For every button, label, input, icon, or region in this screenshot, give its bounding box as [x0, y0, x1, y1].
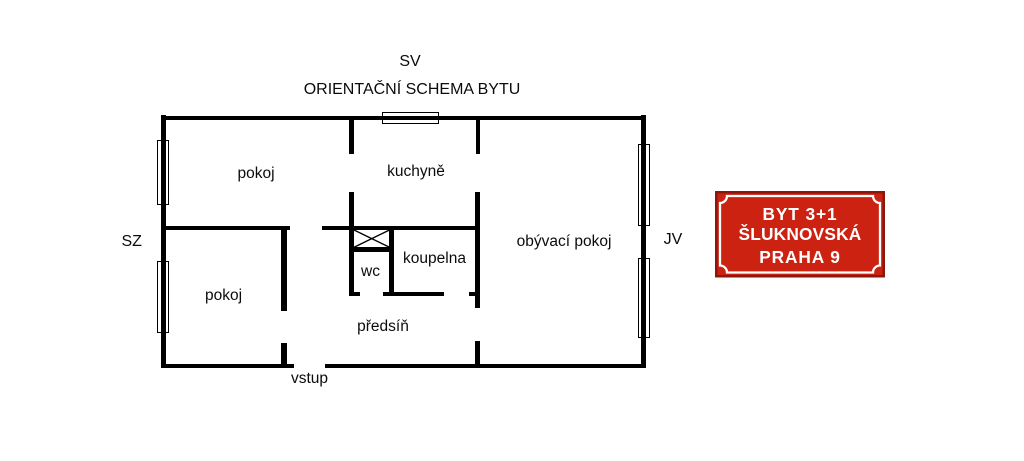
svg-text:PRAHA 9: PRAHA 9	[759, 247, 841, 267]
svg-text:ŠLUKNOVSKÁ: ŠLUKNOVSKÁ	[739, 224, 862, 244]
svg-text:BYT 3+1: BYT 3+1	[763, 204, 838, 224]
